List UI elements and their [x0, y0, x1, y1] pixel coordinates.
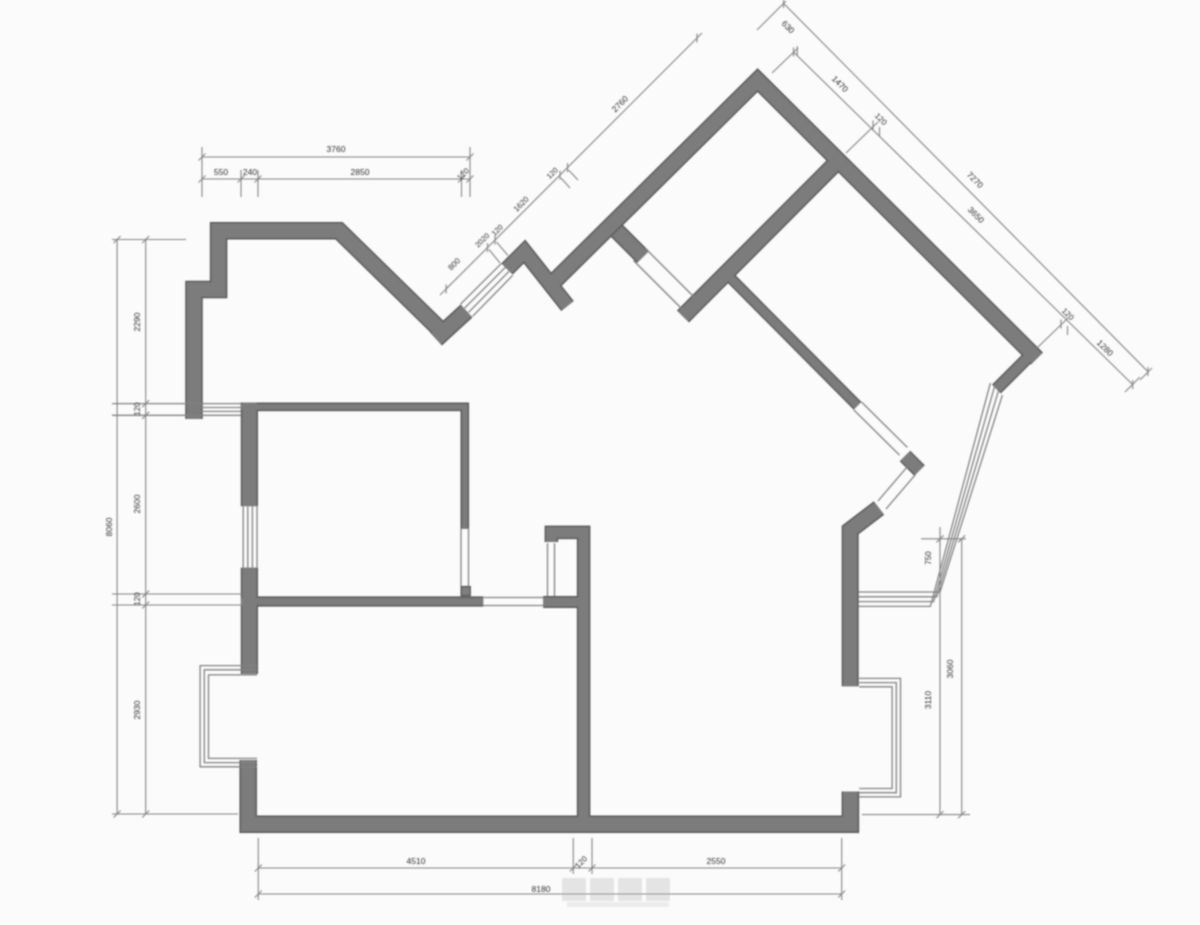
svg-text:240: 240: [243, 167, 257, 177]
svg-text:2930: 2930: [132, 700, 142, 719]
svg-text:8060: 8060: [104, 517, 114, 536]
svg-text:120: 120: [133, 402, 142, 416]
svg-text:750: 750: [924, 551, 933, 565]
svg-text:4510: 4510: [407, 856, 426, 866]
svg-text:3060: 3060: [945, 659, 955, 678]
svg-text:550: 550: [214, 167, 228, 177]
svg-text:2550: 2550: [707, 856, 726, 866]
svg-text:2290: 2290: [132, 312, 142, 331]
svg-text:3110: 3110: [923, 691, 933, 710]
svg-text:3760: 3760: [327, 144, 346, 154]
svg-text:120: 120: [133, 592, 142, 606]
svg-text:8180: 8180: [532, 884, 551, 894]
svg-text:2600: 2600: [132, 494, 142, 513]
svg-text:2850: 2850: [351, 167, 370, 177]
